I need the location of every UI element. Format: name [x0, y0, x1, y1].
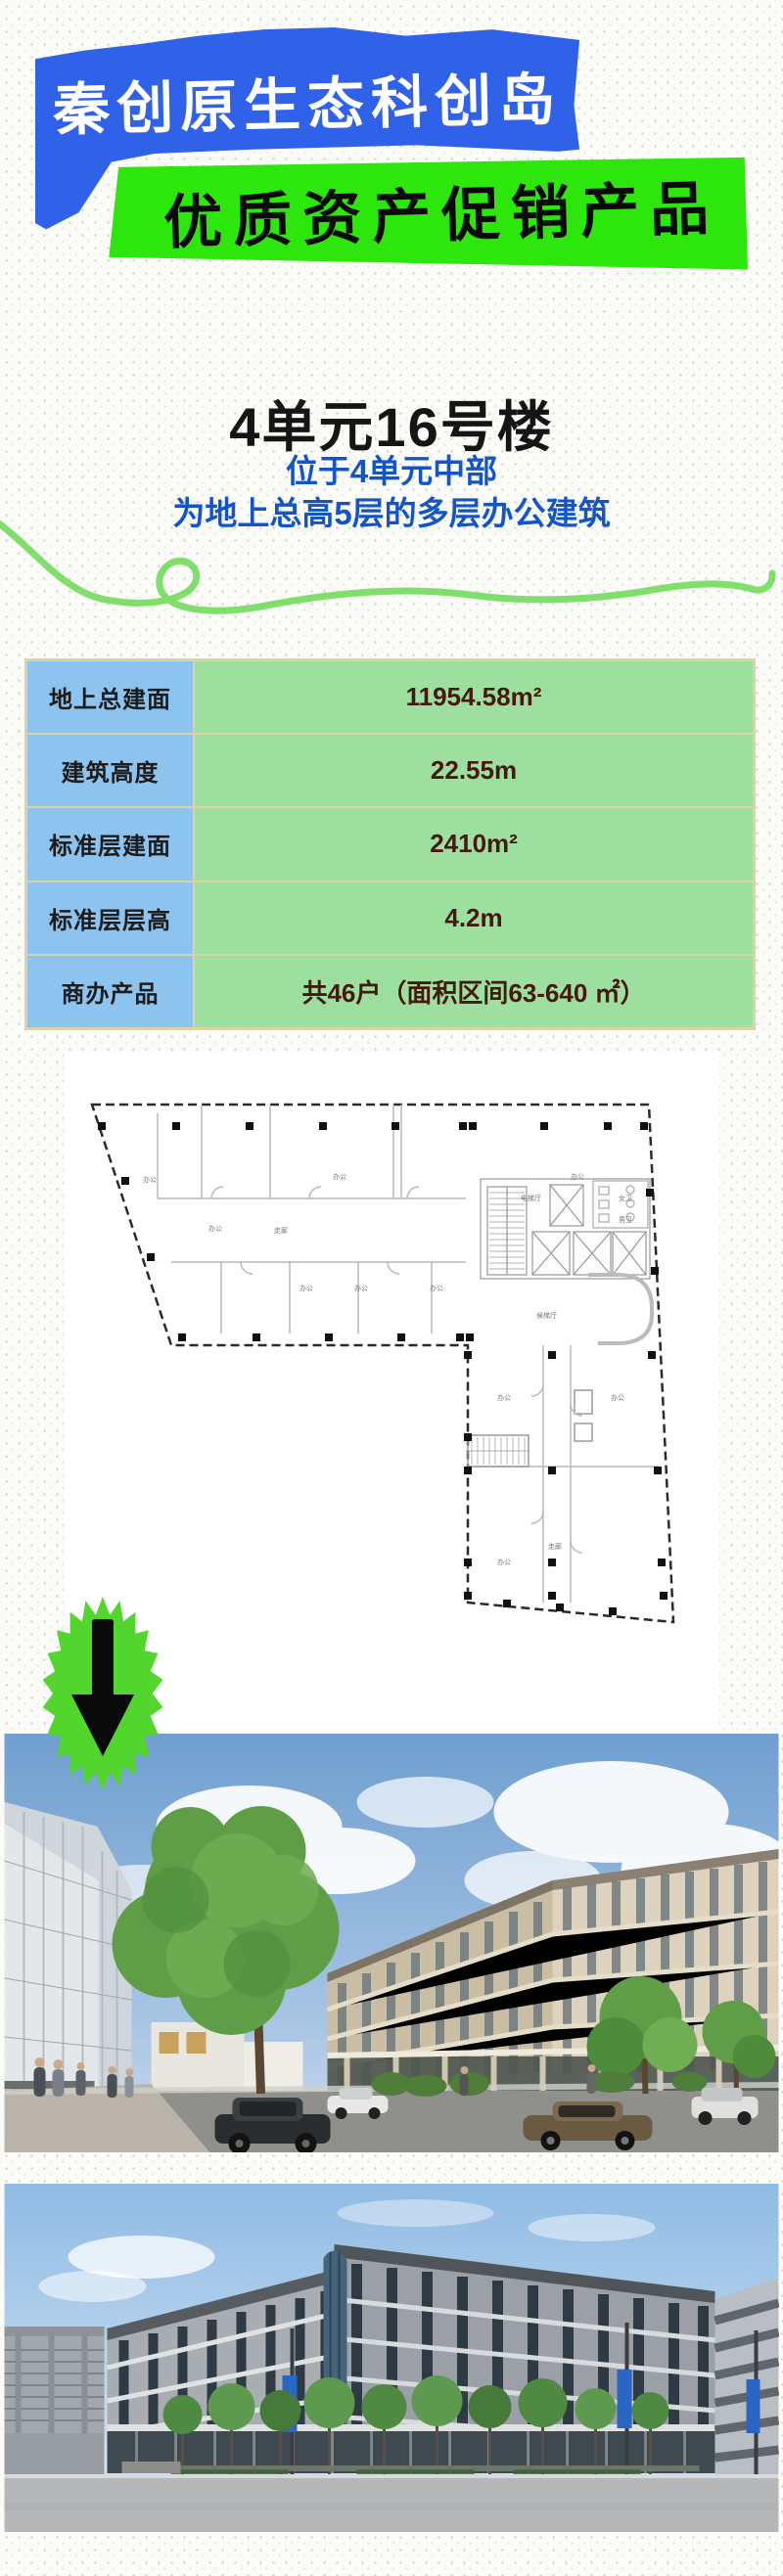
spec-value-height: 22.55m: [194, 734, 754, 807]
down-arrow-badge: [40, 1595, 165, 1792]
spec-label-floorheight: 标准层层高: [26, 881, 194, 955]
plan-room-label: 办公: [497, 1393, 511, 1402]
spec-label-gfa: 地上总建面: [26, 660, 194, 734]
spec-table: 地上总建面 11954.58m² 建筑高度 22.55m 标准层建面 2410m…: [24, 658, 756, 1030]
plan-womens-wc-label: 女卫: [619, 1194, 632, 1202]
plan-room-label: 办公: [497, 1558, 511, 1566]
poster-page: 秦创原生态科创岛 优质资产促销产品 4单元16号楼 位于4单元中部 为地上总高5…: [0, 0, 783, 2576]
secondary-banner: 优质资产促销产品: [106, 149, 748, 272]
spec-label-units: 商办产品: [26, 955, 194, 1028]
plan-room-label: 办公: [430, 1284, 443, 1292]
plan-room-label: 办公: [354, 1284, 368, 1292]
rendering-photo: [4, 1734, 779, 2152]
plan-room-label: 办公: [143, 1175, 157, 1184]
building-subtitle-line1: 位于4单元中部: [0, 450, 783, 492]
plan-room-label: 办公: [611, 1393, 624, 1402]
squiggle-line: [0, 501, 783, 633]
secondary-banner-text: 优质资产促销产品: [162, 160, 720, 260]
plan-room-label: 办公: [571, 1172, 584, 1181]
primary-banner-text: 秦创原生态科创岛: [52, 54, 563, 147]
plan-mens-wc-label: 男卫: [619, 1216, 632, 1224]
spec-value-floorarea: 2410m²: [194, 807, 754, 881]
plan-room-label: 办公: [299, 1284, 313, 1292]
plan-elevator-hall-label: 电梯厅: [521, 1194, 541, 1202]
spec-value-floorheight: 4.2m: [194, 881, 754, 955]
plan-corridor-label: 走廊: [548, 1542, 562, 1551]
exterior-photo: [4, 2184, 779, 2532]
plan-corridor-label: 走廊: [274, 1226, 288, 1235]
plan-waiting-hall-label: 候梯厅: [536, 1311, 557, 1320]
plan-room-label: 办公: [208, 1224, 222, 1233]
spec-value-units: 共46户（面积区间63-640 ㎡）: [194, 955, 754, 1028]
plan-room-label: 办公: [333, 1172, 346, 1181]
spec-label-floorarea: 标准层建面: [26, 807, 194, 881]
spec-value-gfa: 11954.58m²: [194, 660, 754, 734]
spec-label-height: 建筑高度: [26, 734, 194, 807]
